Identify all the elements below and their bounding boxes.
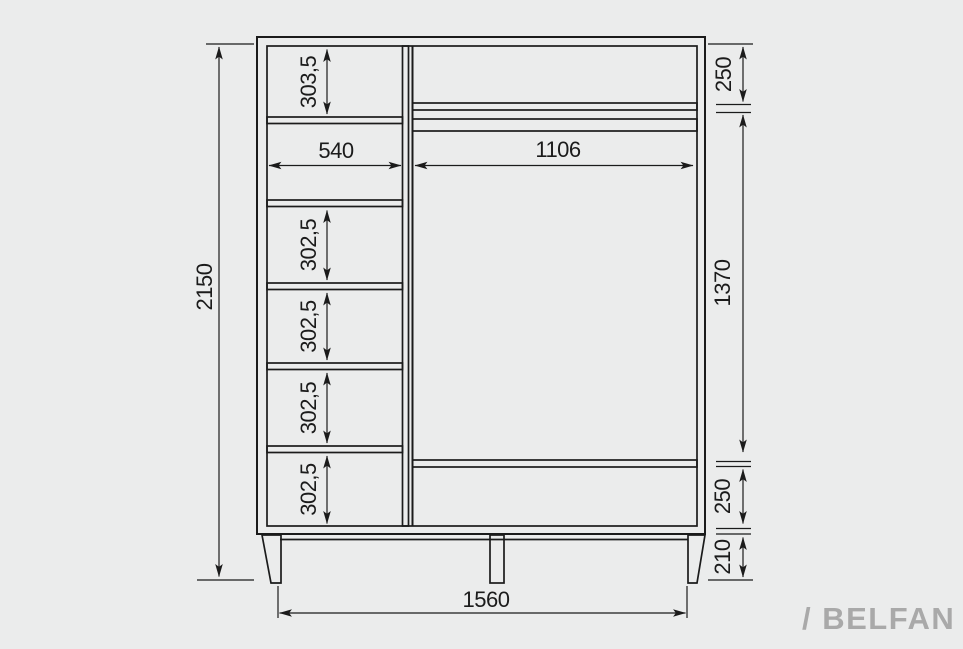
background <box>0 0 963 649</box>
dim-label-right-bottom: 250 <box>710 479 735 514</box>
brand-logo: / BELFAN <box>802 601 955 636</box>
dim-label-legs-height: 210 <box>710 539 735 574</box>
dim-label-right-width: 1106 <box>535 137 581 162</box>
dim-label-left-compartment-4: 302,5 <box>296 463 321 516</box>
dim-label-left-width: 540 <box>318 138 353 163</box>
dim-label-left-top-compartment: 303,5 <box>296 55 321 108</box>
dim-label-left-compartment-1: 302,5 <box>296 218 321 271</box>
drawing-canvas: 2150 303,5 540 1106 302,5 302,5 302,5 <box>0 0 963 649</box>
dim-label-left-compartment-3: 302,5 <box>296 381 321 434</box>
dim-label-left-compartment-2: 302,5 <box>296 300 321 353</box>
dim-label-base-width: 1560 <box>463 587 510 612</box>
dim-label-overall-height: 2150 <box>192 263 217 310</box>
dim-label-right-middle: 1370 <box>710 259 735 306</box>
dim-label-right-top: 250 <box>711 57 736 92</box>
